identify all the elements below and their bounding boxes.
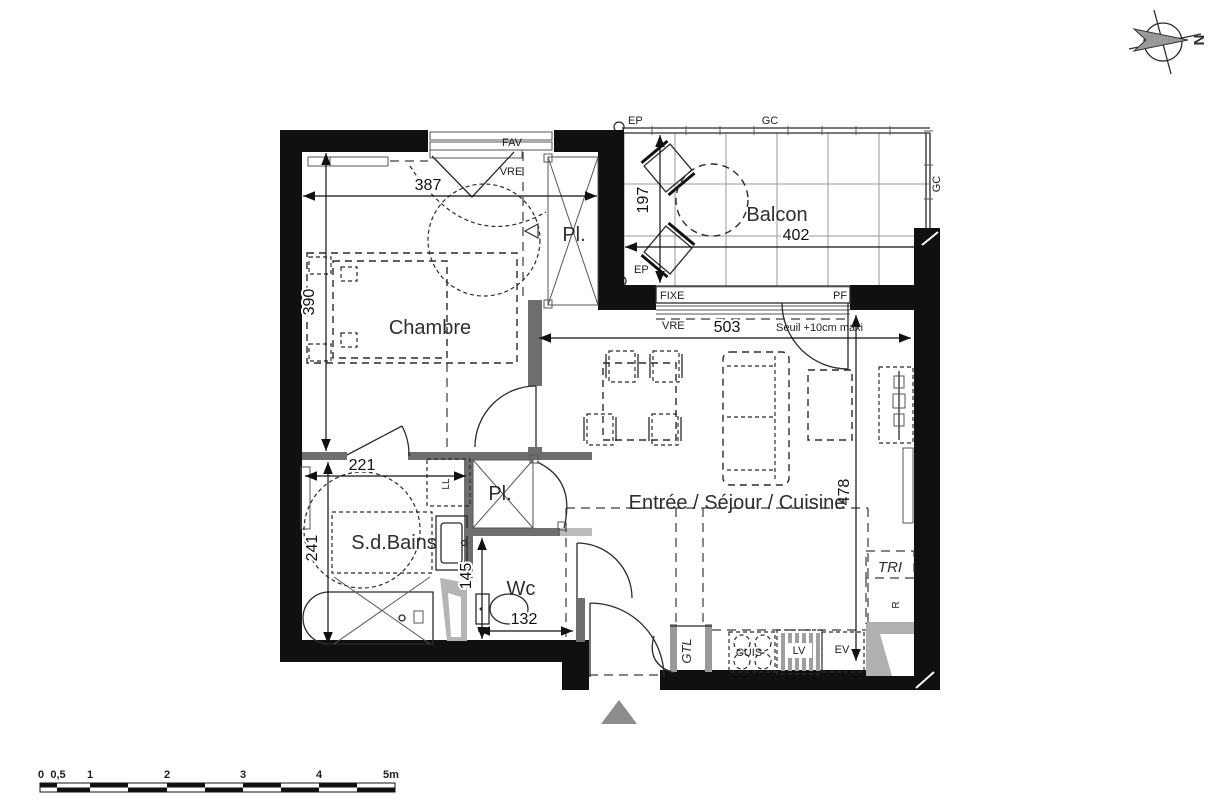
- ann-fav: FAV: [502, 137, 523, 149]
- ann-seuil: Seuil +10cm maxi: [776, 322, 863, 334]
- label-balcon: Balcon: [746, 204, 807, 226]
- wc-room: [464, 528, 632, 642]
- scale-3: 3: [240, 769, 246, 781]
- closet-middle: [473, 455, 567, 530]
- ann-lave-vaisselle: LV: [793, 645, 806, 657]
- label-placard-haut: Pl.: [562, 224, 585, 246]
- kitchen-zone-lines: [566, 508, 868, 640]
- armchair: [808, 370, 852, 440]
- scale-1: 1: [87, 769, 93, 781]
- radiator-living: [903, 448, 913, 523]
- ann-evier: EV: [835, 644, 850, 656]
- dining-table: [584, 351, 682, 445]
- ann-gc-droite: GC: [931, 176, 943, 193]
- ann-cuisson: CUIS: [736, 647, 762, 659]
- ann-tri: TRI: [878, 559, 902, 576]
- ann-refrigerateur: R: [891, 601, 902, 608]
- couch: [723, 352, 789, 485]
- tv-unit: [879, 367, 913, 443]
- label-chambre: Chambre: [389, 317, 471, 339]
- ann-lave-linge: LL: [441, 478, 452, 490]
- dim-wc-height: 145: [458, 563, 475, 590]
- label-sejour: Entrée / Séjour / Cuisine: [629, 492, 846, 514]
- dim-balcon-depth: 197: [635, 187, 652, 214]
- ann-ep-haut: EP: [628, 115, 643, 127]
- ann-gc-haut: GC: [762, 115, 779, 127]
- entrance-marker-icon: [601, 700, 637, 724]
- scale-0: 0: [38, 769, 44, 781]
- turning-circle-bathroom: [304, 472, 420, 588]
- chair: [584, 414, 616, 445]
- label-sdbains: S.d.Bains: [351, 532, 437, 554]
- ann-vre-sejour: VRE: [662, 320, 685, 332]
- dim-sdb-height: 241: [304, 535, 321, 562]
- dim-wc-width: 132: [511, 611, 538, 628]
- bathtub: [303, 577, 433, 644]
- washbasin: [436, 516, 467, 570]
- scale-5m: 5m: [383, 769, 399, 781]
- bed: [307, 253, 517, 363]
- scale-05: 0,5: [50, 769, 65, 781]
- ann-vre-chambre: VRE: [500, 166, 523, 178]
- corner-counter: [866, 622, 914, 676]
- chair: [650, 351, 682, 382]
- entry: [589, 603, 664, 724]
- ann-pf: PF: [833, 290, 847, 302]
- dim-balcon-width: 402: [783, 227, 810, 244]
- ann-gtl: GTL: [679, 638, 694, 663]
- north-label: N: [1190, 35, 1207, 46]
- bedroom-partition-door: [475, 300, 542, 458]
- floor-plan-drawing: 387 390 197 402 503 478 221 241 145 132 …: [0, 0, 1222, 800]
- compass: N: [1129, 10, 1207, 74]
- scale-bar: 0 0,5 1 2 3 4 5m: [38, 769, 399, 792]
- label-placard-bas: Pl.: [488, 483, 511, 505]
- radiator-bedroom: [308, 157, 388, 166]
- closet-door-arrow-icon: [525, 224, 538, 238]
- label-wc: Wc: [507, 578, 536, 600]
- dim-sdb-width: 221: [349, 457, 376, 474]
- dim-chambre-width: 387: [415, 177, 442, 194]
- scale-4: 4: [316, 769, 323, 781]
- chair: [606, 351, 638, 382]
- floor-plan-page: 387 390 197 402 503 478 221 241 145 132 …: [0, 0, 1222, 800]
- ann-ep-bas: EP: [634, 264, 649, 276]
- dim-sejour-width: 503: [714, 319, 741, 336]
- dim-chambre-height: 390: [301, 289, 318, 316]
- scale-2: 2: [164, 769, 170, 781]
- ann-fixe: FIXE: [660, 290, 684, 302]
